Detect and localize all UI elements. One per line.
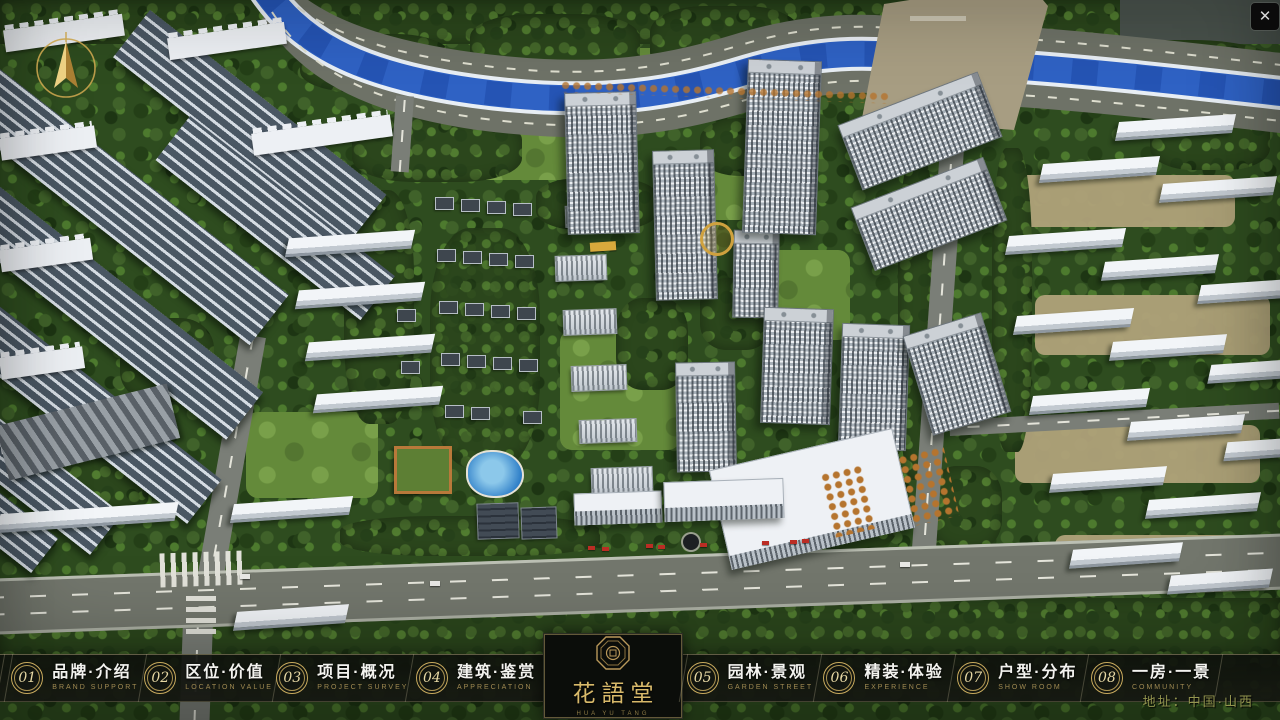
nav-label-zh: 品牌·介绍 bbox=[52, 664, 138, 682]
courtyard-house bbox=[492, 306, 509, 317]
sales-center-canopy bbox=[573, 490, 662, 525]
brand-logo-panel: 花語堂 HUA YU TANG bbox=[543, 633, 683, 719]
courtyard-house bbox=[490, 254, 507, 265]
car bbox=[646, 544, 653, 548]
nav-item-location[interactable]: 02 区位·价值 LOCATION VALUE bbox=[142, 655, 276, 701]
courtyard-house bbox=[442, 354, 459, 365]
courtyard-house bbox=[488, 202, 505, 213]
courtyard-house bbox=[518, 308, 535, 319]
car bbox=[900, 562, 910, 567]
brand-logo-caption: HUA YU TANG bbox=[576, 711, 649, 717]
car bbox=[658, 545, 665, 549]
courtyard-house bbox=[402, 362, 419, 373]
swimming-pool bbox=[466, 450, 524, 498]
clubhouse-roof bbox=[477, 503, 518, 538]
nav-number-badge: 03 bbox=[276, 662, 308, 694]
courtyard-house bbox=[446, 406, 463, 417]
midrise-building bbox=[572, 365, 627, 391]
nav-label-zh: 一房·一景 bbox=[1132, 664, 1211, 682]
nav-item-architecture[interactable]: 04 建筑·鉴赏 APPRECIATION bbox=[409, 655, 543, 701]
bottom-nav-bar: 01 品牌·介绍 BRAND SUPPORT 02 区位·价值 LOCATION… bbox=[0, 654, 1280, 702]
lawn bbox=[246, 412, 378, 498]
nav-number-badge: 08 bbox=[1091, 662, 1123, 694]
courtyard-house bbox=[398, 310, 415, 321]
nav-label-en: BRAND SUPPORT bbox=[52, 684, 138, 692]
nav-item-interior[interactable]: 06 精装·体验 EXPERIENCE bbox=[817, 655, 951, 701]
courtyard-house bbox=[436, 198, 453, 209]
nav-label-en: EXPERIENCE bbox=[864, 684, 943, 692]
nav-label-zh: 建筑·鉴赏 bbox=[457, 664, 536, 682]
courtyard-house bbox=[472, 408, 489, 419]
midrise-building bbox=[564, 309, 617, 335]
row-building bbox=[1223, 438, 1280, 461]
tree-cluster bbox=[340, 516, 600, 556]
nav-label-en: PROJECT SURVEY bbox=[317, 684, 408, 692]
nav-label-en: APPRECIATION bbox=[457, 684, 536, 692]
nav-number-badge: 07 bbox=[957, 662, 989, 694]
close-icon: ✕ bbox=[1259, 8, 1272, 25]
entry-roundabout bbox=[683, 534, 699, 550]
car bbox=[430, 581, 440, 586]
nav-number-badge: 02 bbox=[144, 662, 176, 694]
courtyard-house bbox=[440, 302, 457, 313]
car bbox=[790, 540, 797, 544]
nav-number-badge: 05 bbox=[687, 662, 719, 694]
courtyard-house bbox=[466, 304, 483, 315]
tower bbox=[760, 307, 834, 425]
car bbox=[588, 546, 595, 550]
row-building bbox=[1101, 254, 1219, 281]
row-building bbox=[1145, 492, 1261, 519]
nav-label-zh: 户型·分布 bbox=[998, 664, 1077, 682]
nav-number-badge: 01 bbox=[11, 662, 43, 694]
courtyard-house bbox=[464, 252, 481, 263]
car bbox=[602, 547, 609, 551]
courtyard-house bbox=[468, 356, 485, 367]
nav-label-zh: 精装·体验 bbox=[864, 664, 943, 682]
row-building bbox=[1207, 359, 1280, 384]
midrise-building bbox=[556, 255, 607, 281]
row-building bbox=[230, 496, 353, 523]
courtyard-house bbox=[438, 250, 455, 261]
courtyard-house bbox=[462, 200, 479, 211]
nav-label-en: SHOW ROOM bbox=[998, 684, 1077, 692]
bus bbox=[590, 241, 617, 252]
octagon-seal-icon bbox=[595, 635, 631, 671]
nav-item-garden[interactable]: 05 园林·景观 GARDEN STREET bbox=[683, 655, 817, 701]
nav-label-en: GARDEN STREET bbox=[728, 684, 814, 692]
car bbox=[700, 543, 707, 547]
tower bbox=[675, 361, 737, 472]
nav-item-project[interactable]: 03 项目·概况 PROJECT SURVEY bbox=[276, 655, 410, 701]
logo-slot: 花語堂 HUA YU TANG bbox=[543, 655, 683, 701]
compass-north-icon[interactable] bbox=[30, 28, 102, 104]
brand-logo-title: 花語堂 bbox=[573, 674, 660, 708]
nav-label-en: LOCATION VALUE bbox=[185, 684, 273, 692]
garden-building bbox=[394, 446, 452, 494]
courtyard-house bbox=[520, 360, 537, 371]
landscape-ring bbox=[700, 222, 734, 256]
car bbox=[762, 541, 769, 545]
crosswalk bbox=[159, 551, 244, 588]
nav-item-brand[interactable]: 01 品牌·介绍 BRAND SUPPORT bbox=[8, 655, 142, 701]
sales-center-canopy bbox=[663, 478, 784, 522]
nav-number-badge: 06 bbox=[823, 662, 855, 694]
nav-label-zh: 区位·价值 bbox=[185, 664, 273, 682]
project-address: 地址：中国·山西 bbox=[1143, 691, 1254, 710]
courtyard-house bbox=[516, 256, 533, 267]
tower bbox=[732, 230, 780, 319]
car bbox=[240, 574, 250, 579]
nav-item-floorplan[interactable]: 07 户型·分布 SHOW ROOM bbox=[951, 655, 1085, 701]
courtyard-house bbox=[524, 412, 541, 423]
aerial-map[interactable] bbox=[0, 0, 1280, 720]
tower bbox=[742, 59, 822, 235]
midrise-building bbox=[580, 419, 637, 443]
close-button[interactable]: ✕ bbox=[1251, 3, 1279, 30]
nav-label-zh: 项目·概况 bbox=[317, 664, 408, 682]
courtyard-house bbox=[514, 204, 531, 215]
app-window: ✕ 01 品牌·介绍 BRAND SUPPORT 02 区位·价值 LOCATI… bbox=[0, 0, 1280, 720]
car bbox=[802, 539, 809, 543]
nav-label-zh: 园林·景观 bbox=[728, 664, 814, 682]
nav-number-badge: 04 bbox=[416, 662, 448, 694]
tower bbox=[564, 91, 640, 235]
courtyard-house bbox=[494, 358, 511, 369]
clubhouse-roof bbox=[521, 507, 556, 538]
crosswalk bbox=[186, 594, 216, 634]
